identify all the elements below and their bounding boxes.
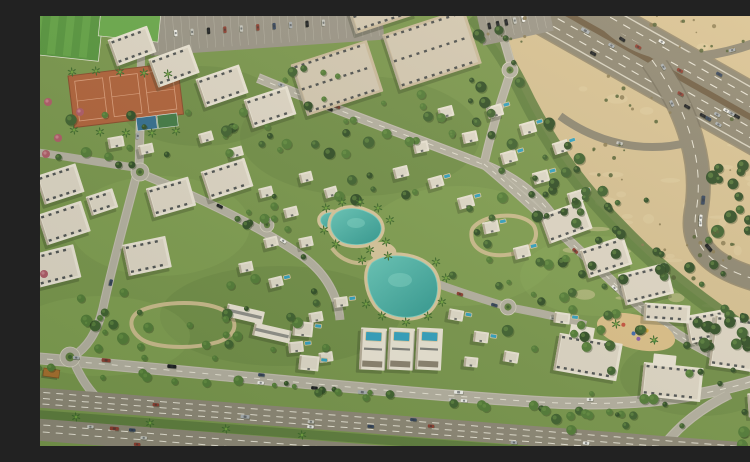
car	[222, 26, 226, 33]
scene-canvas	[40, 16, 750, 446]
car	[307, 420, 314, 424]
car	[510, 441, 517, 445]
car	[255, 24, 259, 31]
car	[140, 436, 147, 440]
car	[454, 390, 464, 395]
car	[305, 21, 309, 28]
car	[239, 25, 243, 32]
car	[152, 403, 159, 407]
car	[135, 133, 139, 140]
car	[410, 418, 417, 422]
car	[206, 27, 210, 34]
car	[428, 424, 435, 428]
car	[321, 19, 325, 26]
car	[258, 373, 265, 378]
car	[173, 30, 177, 37]
car	[129, 428, 136, 432]
car	[190, 29, 194, 36]
car	[257, 381, 264, 386]
car	[367, 425, 374, 429]
football-field	[40, 16, 104, 61]
car	[587, 398, 594, 402]
car	[110, 426, 120, 431]
car	[307, 425, 314, 429]
apartment-block	[640, 302, 690, 327]
car	[698, 214, 702, 221]
roundabout	[500, 299, 516, 315]
roof-pool-villa	[412, 327, 443, 374]
car	[700, 195, 705, 205]
car	[101, 358, 111, 363]
car	[240, 415, 250, 420]
car	[87, 425, 94, 429]
car	[461, 399, 468, 403]
roof-pool-villa	[356, 327, 387, 374]
roof-pool-villa	[384, 327, 415, 374]
aerial-compound-render	[40, 16, 750, 446]
car	[288, 22, 292, 29]
car	[583, 441, 590, 445]
car	[73, 356, 80, 361]
car	[167, 364, 177, 369]
car	[272, 23, 276, 30]
